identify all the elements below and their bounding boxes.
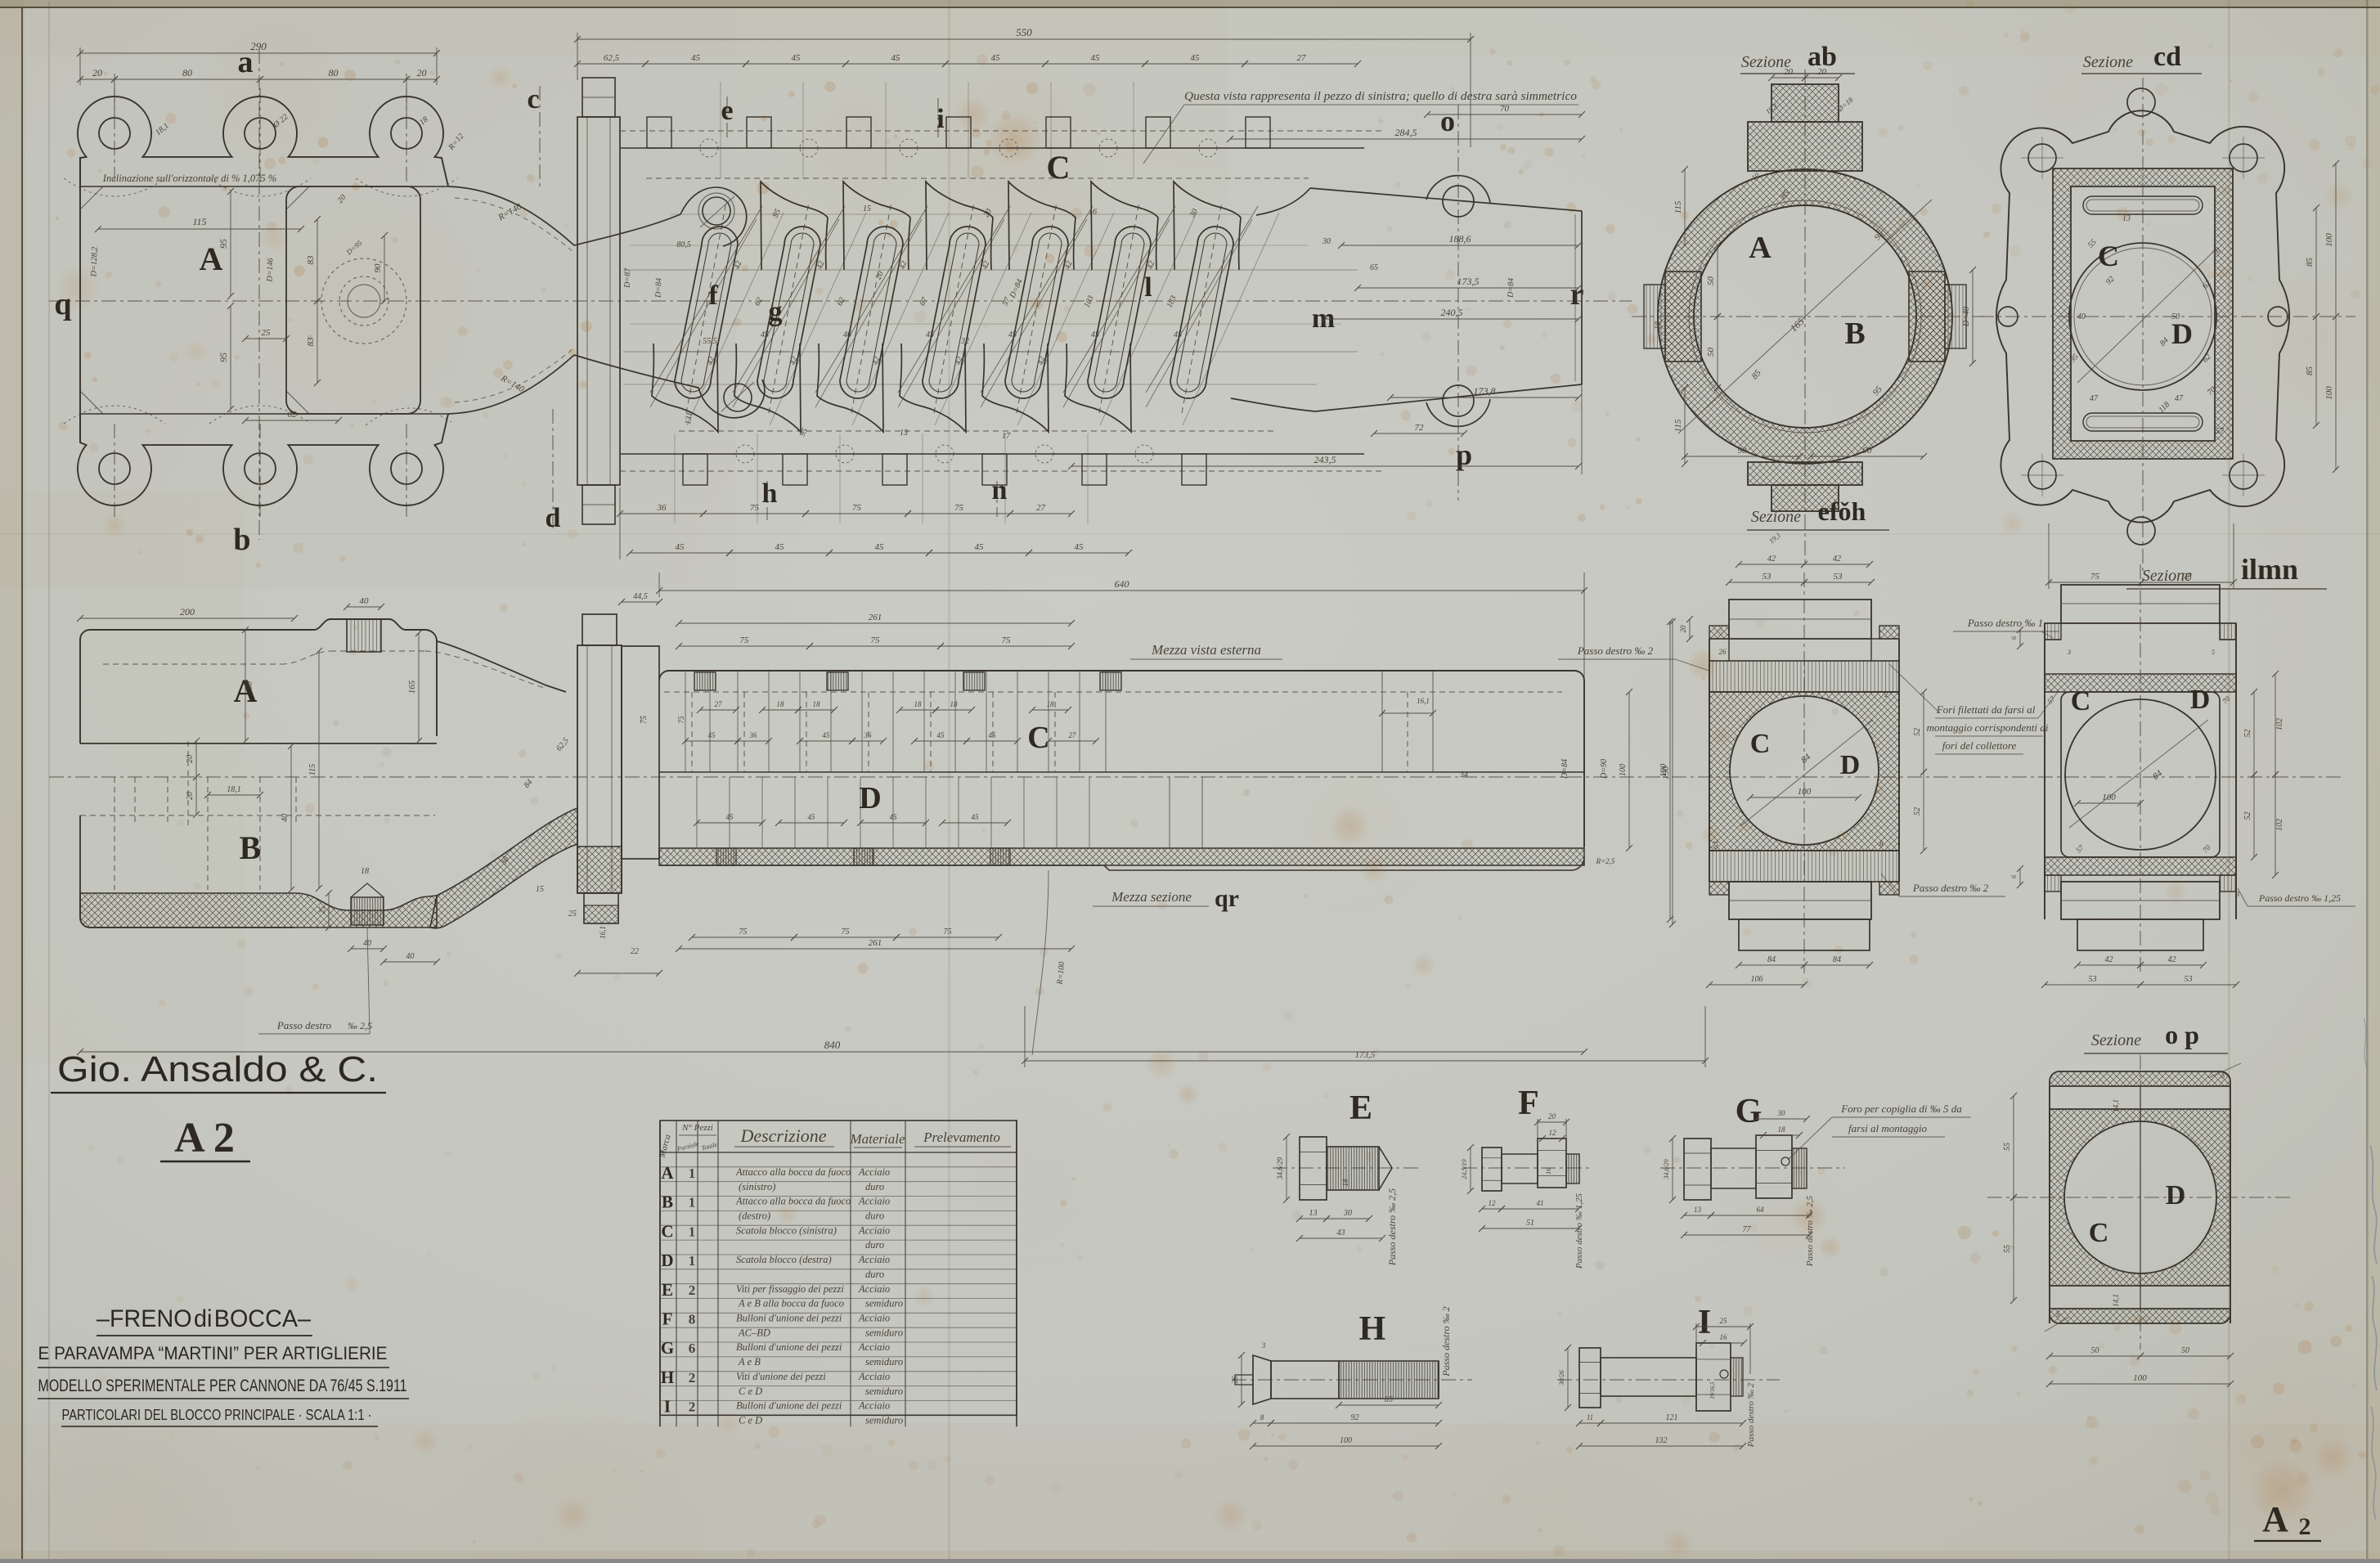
svg-text:Prelevamento: Prelevamento — [923, 1130, 1000, 1145]
svg-text:H: H — [661, 1368, 674, 1387]
svg-text:E: E — [1349, 1089, 1372, 1127]
svg-text:18,1: 18,1 — [227, 785, 241, 794]
svg-text:F: F — [1518, 1085, 1539, 1122]
svg-text:45: 45 — [891, 53, 901, 63]
svg-text:50: 50 — [1706, 276, 1716, 286]
svg-text:18: 18 — [1341, 1179, 1349, 1187]
svg-text:85: 85 — [1385, 1395, 1393, 1404]
svg-text:30: 30 — [1777, 1109, 1786, 1117]
svg-text:efǒh: efǒh — [1818, 496, 1866, 526]
svg-text:3: 3 — [2067, 649, 2071, 656]
svg-text:12: 12 — [1489, 1199, 1497, 1207]
svg-text:g: g — [769, 297, 783, 327]
svg-text:115: 115 — [308, 764, 317, 775]
svg-text:duro: duro — [865, 1210, 884, 1222]
svg-text:Gio. Ansaldo & C.: Gio. Ansaldo & C. — [57, 1049, 378, 1089]
svg-text:43: 43 — [1337, 1228, 1345, 1237]
svg-text:Acciaio: Acciaio — [858, 1400, 890, 1412]
svg-text:53: 53 — [2089, 975, 2097, 984]
svg-text:75: 75 — [954, 503, 964, 513]
svg-text:261: 261 — [869, 613, 882, 622]
svg-text:85: 85 — [2305, 258, 2315, 267]
svg-text:Passo destro: Passo destro — [276, 1019, 332, 1031]
svg-text:I: I — [664, 1397, 671, 1417]
svg-text:Attacco alla bocca da fuoco: Attacco alla bocca da fuoco — [735, 1196, 851, 1207]
svg-text:Mezza sezione: Mezza sezione — [1111, 889, 1192, 905]
svg-text:75: 75 — [852, 503, 862, 513]
svg-text:montaggio corrispondenti ai: montaggio corrispondenti ai — [1927, 721, 2049, 734]
svg-text:F: F — [662, 1309, 673, 1329]
svg-text:C: C — [2098, 240, 2119, 272]
svg-text:70: 70 — [1500, 104, 1510, 114]
svg-text:84: 84 — [1833, 955, 1841, 964]
svg-text:semiduro: semiduro — [865, 1298, 903, 1309]
svg-text:Viti per fissaggio dei pezzi: Viti per fissaggio dei pezzi — [736, 1283, 844, 1295]
svg-text:36: 36 — [749, 731, 758, 739]
svg-text:284,5: 284,5 — [1395, 127, 1417, 138]
svg-text:cd: cd — [2153, 42, 2181, 72]
svg-text:11: 11 — [1587, 1413, 1593, 1422]
svg-text:165: 165 — [407, 680, 417, 694]
svg-text:16,1: 16,1 — [1712, 841, 1719, 852]
svg-text:Bulloni d'unione dei pezzi: Bulloni d'unione dei pezzi — [736, 1341, 842, 1353]
svg-text:Passo destro ‰ 2,5: Passo destro ‰ 2,5 — [1386, 1188, 1398, 1266]
svg-text:16,1: 16,1 — [599, 926, 607, 939]
svg-text:640: 640 — [1115, 578, 1129, 590]
svg-text:51: 51 — [1526, 1219, 1534, 1228]
svg-text:Inclinazione sull'orizzontale: Inclinazione sull'orizzontale di % 1,075… — [102, 173, 276, 184]
svg-text:16: 16 — [1720, 1333, 1728, 1341]
svg-text:25: 25 — [1720, 1317, 1728, 1325]
svg-text:95: 95 — [218, 239, 229, 249]
svg-text:55,5: 55,5 — [703, 337, 717, 346]
svg-text:D: D — [2190, 685, 2211, 715]
svg-text:Passo destro ‰ 2: Passo destro ‰ 2 — [1746, 1382, 1756, 1448]
svg-text:52: 52 — [2243, 812, 2252, 820]
svg-text:25: 25 — [318, 906, 326, 914]
svg-text:20: 20 — [92, 67, 102, 79]
svg-text:A e B alla bocca da fuoco: A e B alla bocca da fuoco — [738, 1298, 844, 1309]
svg-text:45: 45 — [937, 731, 945, 739]
svg-text:Sezione: Sezione — [1751, 508, 1801, 526]
svg-text:290: 290 — [250, 40, 267, 52]
svg-text:75: 75 — [640, 716, 649, 724]
svg-text:77: 77 — [1743, 1225, 1752, 1234]
svg-text:50: 50 — [2181, 1346, 2189, 1355]
svg-text:85: 85 — [2305, 366, 2315, 376]
svg-text:20: 20 — [1679, 625, 1687, 633]
svg-text:I: I — [1698, 1304, 1711, 1341]
svg-text:25: 25 — [262, 328, 272, 338]
svg-text:C e D: C e D — [739, 1415, 762, 1426]
svg-text:3: 3 — [1261, 1341, 1266, 1350]
svg-text:(sinistro): (sinistro) — [739, 1181, 775, 1192]
svg-text:N° Pezzi: N° Pezzi — [681, 1123, 713, 1133]
svg-text:80: 80 — [182, 67, 192, 79]
svg-text:36: 36 — [657, 503, 667, 513]
svg-text:18: 18 — [914, 700, 923, 708]
svg-text:AC–BD: AC–BD — [738, 1327, 770, 1338]
svg-text:Acciaio: Acciaio — [858, 1196, 890, 1207]
svg-text:121: 121 — [1666, 1413, 1678, 1422]
svg-text:G: G — [661, 1338, 674, 1358]
svg-text:45: 45 — [691, 53, 701, 63]
svg-text:2: 2 — [2299, 1513, 2311, 1540]
svg-text:45: 45 — [775, 542, 785, 552]
svg-text:C e D: C e D — [739, 1386, 762, 1397]
svg-text:ilmn: ilmn — [2241, 553, 2298, 586]
svg-text:Bulloni d'unione dei pezzi: Bulloni d'unione dei pezzi — [736, 1313, 842, 1324]
svg-text:Scatola blocco (destra): Scatola blocco (destra) — [736, 1254, 832, 1265]
svg-text:13: 13 — [2122, 214, 2131, 223]
svg-text:(destro): (destro) — [739, 1210, 770, 1222]
svg-text:34,6/29: 34,6/29 — [1276, 1157, 1284, 1180]
svg-text:102: 102 — [2275, 718, 2284, 730]
svg-text:18: 18 — [1778, 1125, 1786, 1134]
svg-text:Acciaio: Acciaio — [858, 1166, 890, 1178]
svg-text:18: 18 — [361, 867, 369, 876]
svg-text:100: 100 — [2324, 233, 2334, 247]
svg-text:243,5: 243,5 — [1314, 454, 1336, 465]
svg-text:100: 100 — [1619, 764, 1628, 776]
svg-text:100: 100 — [1340, 1436, 1352, 1445]
svg-text:Acciaio: Acciaio — [858, 1224, 890, 1236]
svg-text:G: G — [1736, 1093, 1763, 1130]
svg-text:132: 132 — [1655, 1436, 1668, 1445]
svg-text:Foro per copiglia di ‰ 5 da: Foro per copiglia di ‰ 5 da — [1840, 1103, 1962, 1115]
svg-text:45: 45 — [792, 53, 802, 63]
svg-text:12: 12 — [1549, 1129, 1557, 1137]
svg-text:semiduro: semiduro — [865, 1356, 903, 1368]
svg-text:B: B — [240, 829, 262, 866]
svg-text:34: 34 — [1459, 770, 1468, 779]
svg-text:13: 13 — [1694, 1206, 1702, 1214]
svg-text:200: 200 — [180, 606, 195, 618]
svg-text:5: 5 — [2056, 1310, 2060, 1318]
svg-text:188,6: 188,6 — [1449, 233, 1471, 245]
svg-text:40: 40 — [281, 814, 290, 822]
svg-text:Fori filettati da farsi al: Fori filettati da farsi al — [1936, 703, 2036, 716]
svg-text:18: 18 — [950, 700, 959, 708]
svg-text:55: 55 — [2003, 1245, 2012, 1253]
svg-text:45: 45 — [991, 53, 1001, 63]
svg-text:45: 45 — [926, 330, 934, 339]
svg-text:8: 8 — [1260, 1413, 1264, 1422]
svg-text:20: 20 — [417, 67, 427, 79]
svg-text:53: 53 — [2185, 975, 2193, 984]
svg-text:45: 45 — [975, 542, 985, 552]
svg-text:15: 15 — [863, 204, 871, 213]
svg-text:D: D — [2166, 1180, 2186, 1210]
svg-text:Passo destro ‰ 1: Passo destro ‰ 1 — [1967, 617, 2043, 629]
svg-text:C: C — [1750, 729, 1771, 759]
svg-text:Passo destro ‰ 2,5: Passo destro ‰ 2,5 — [1805, 1195, 1815, 1267]
svg-text:45: 45 — [1191, 53, 1201, 63]
svg-text:42: 42 — [2168, 955, 2176, 964]
svg-text:36: 36 — [864, 731, 873, 739]
svg-text:40: 40 — [2077, 312, 2086, 321]
svg-text:44,5: 44,5 — [633, 592, 648, 601]
svg-text:20: 20 — [1548, 1112, 1556, 1121]
svg-text:90: 90 — [245, 681, 254, 689]
svg-text:Passo destro ‰ 2: Passo destro ‰ 2 — [1912, 882, 1989, 894]
svg-text:D: D — [2171, 317, 2193, 350]
svg-text:D=84: D=84 — [1507, 278, 1516, 299]
svg-text:45: 45 — [1174, 330, 1182, 339]
svg-text:D=87: D=87 — [623, 267, 633, 289]
svg-text:95: 95 — [218, 353, 229, 362]
svg-text:45: 45 — [1008, 330, 1017, 339]
svg-text:E PARAVAMPA “MARTINI” PER ARTI: E PARAVAMPA “MARTINI” PER ARTIGLIERIE — [38, 1343, 388, 1363]
svg-text:2: 2 — [689, 1399, 696, 1415]
svg-text:26: 26 — [1719, 648, 1727, 656]
svg-text:n: n — [992, 475, 1008, 505]
svg-text:Questa vista rappresenta il: Questa vista rappresenta il pezzo di sin… — [1184, 90, 1578, 103]
svg-text:8: 8 — [1879, 840, 1884, 848]
svg-text:A: A — [2262, 1499, 2288, 1539]
svg-text:25: 25 — [568, 910, 577, 918]
svg-text:45: 45 — [989, 731, 997, 739]
svg-text:17: 17 — [1002, 432, 1011, 441]
svg-text:5: 5 — [2221, 1071, 2225, 1080]
svg-text:115: 115 — [1673, 200, 1683, 213]
svg-text:duro: duro — [865, 1181, 884, 1192]
svg-text:A: A — [661, 1163, 674, 1183]
svg-text:d: d — [546, 503, 561, 533]
svg-text:18: 18 — [813, 700, 821, 708]
svg-text:B: B — [1844, 317, 1865, 351]
svg-text:92: 92 — [1351, 1413, 1359, 1422]
svg-text:65: 65 — [1370, 263, 1378, 272]
svg-text:46: 46 — [843, 330, 851, 339]
svg-text:30: 30 — [1343, 1209, 1352, 1218]
svg-text:45: 45 — [890, 813, 898, 821]
svg-text:c: c — [527, 84, 539, 115]
svg-text:75: 75 — [871, 636, 881, 645]
svg-text:f: f — [708, 281, 718, 311]
svg-text:50: 50 — [2171, 312, 2180, 321]
svg-text:C: C — [1027, 721, 1049, 755]
svg-text:3: 3 — [2235, 891, 2239, 898]
svg-text:240,5: 240,5 — [1441, 307, 1463, 318]
svg-text:106: 106 — [1751, 975, 1763, 984]
svg-text:27: 27 — [1036, 503, 1046, 513]
svg-text:R=2,5: R=2,5 — [1596, 857, 1615, 865]
svg-text:72: 72 — [1415, 423, 1425, 433]
svg-text:52: 52 — [1913, 728, 1922, 736]
svg-text:16,1: 16,1 — [1417, 697, 1430, 705]
svg-text:Descrizione: Descrizione — [739, 1125, 826, 1146]
svg-text:45: 45 — [1075, 542, 1084, 552]
svg-text:30/26: 30/26 — [1558, 1370, 1565, 1386]
svg-text:Materiale: Materiale — [849, 1131, 905, 1147]
svg-text:53: 53 — [1763, 572, 1772, 582]
svg-text:14,1: 14,1 — [2112, 1294, 2120, 1307]
svg-text:42: 42 — [1833, 555, 1841, 564]
svg-text:24,5/19: 24,5/19 — [1461, 1159, 1468, 1179]
svg-text:2: 2 — [689, 1282, 696, 1298]
svg-text:D: D — [859, 781, 881, 815]
svg-text:32: 32 — [960, 337, 969, 346]
svg-text:6: 6 — [2010, 875, 2018, 878]
svg-text:100: 100 — [2102, 793, 2116, 802]
svg-text:Attacco alla bocca da fuoco: Attacco alla bocca da fuoco — [735, 1166, 851, 1178]
svg-text:75: 75 — [944, 927, 952, 936]
svg-text:55: 55 — [2003, 1143, 2012, 1151]
svg-text:550: 550 — [1016, 26, 1032, 38]
svg-text:duro: duro — [865, 1269, 884, 1280]
svg-text:102: 102 — [2275, 819, 2284, 831]
svg-text:1: 1 — [689, 1253, 696, 1269]
svg-text:1: 1 — [689, 1224, 696, 1239]
svg-text:Acciaio: Acciaio — [858, 1254, 890, 1265]
svg-text:45: 45 — [1091, 53, 1101, 63]
svg-text:45: 45 — [1091, 330, 1099, 339]
svg-text:22: 22 — [631, 947, 639, 956]
svg-text:D: D — [661, 1251, 673, 1270]
svg-text:5: 5 — [2212, 649, 2215, 656]
svg-text:Viti d'unione dei pezzi: Viti d'unione dei pezzi — [736, 1371, 826, 1382]
svg-text:8: 8 — [689, 1312, 696, 1327]
svg-text:Passo destro ‰ 1,25: Passo destro ‰ 1,25 — [2258, 892, 2341, 904]
svg-text:Bulloni d'unione dei pezzi: Bulloni d'unione dei pezzi — [736, 1400, 842, 1412]
svg-text:190: 190 — [1659, 763, 1668, 777]
svg-text:E: E — [662, 1280, 673, 1300]
svg-text:D: D — [1840, 750, 1861, 780]
svg-text:840: 840 — [824, 1039, 841, 1051]
svg-text:42: 42 — [2105, 955, 2113, 964]
svg-text:27: 27 — [1297, 53, 1307, 63]
svg-text:20: 20 — [186, 755, 195, 763]
svg-text:100: 100 — [2133, 1373, 2147, 1383]
svg-text:Scatola blocco (sinistra): Scatola blocco (sinistra) — [736, 1224, 837, 1236]
svg-text:64: 64 — [1757, 1206, 1765, 1214]
svg-text:173,8: 173,8 — [1474, 385, 1496, 397]
svg-text:84: 84 — [1767, 955, 1776, 964]
svg-text:A: A — [1749, 231, 1772, 265]
svg-text:26: 26 — [1231, 1376, 1239, 1384]
svg-text:15: 15 — [536, 885, 544, 894]
svg-text:83: 83 — [306, 255, 316, 265]
svg-text:o: o — [1440, 105, 1455, 137]
svg-text:D=40: D=40 — [1962, 307, 1971, 327]
svg-text:83: 83 — [306, 337, 316, 347]
svg-text:90: 90 — [1738, 446, 1748, 456]
svg-text:20: 20 — [1784, 67, 1794, 77]
svg-text:80: 80 — [329, 67, 339, 79]
svg-text:C: C — [1047, 149, 1071, 186]
svg-text:farsi al montaggio: farsi al montaggio — [1848, 1122, 1928, 1134]
svg-text:47: 47 — [2175, 394, 2184, 403]
svg-text:75: 75 — [1002, 636, 1012, 645]
svg-text:Passo destro ‰ 2: Passo destro ‰ 2 — [1440, 1306, 1452, 1377]
svg-text:D=84: D=84 — [1560, 759, 1569, 779]
svg-text:75: 75 — [739, 927, 748, 936]
svg-text:18: 18 — [1654, 321, 1663, 330]
svg-text:C: C — [2089, 1218, 2109, 1248]
svg-text:100: 100 — [1798, 787, 1812, 797]
svg-text:A 2: A 2 — [174, 1115, 235, 1161]
svg-text:13: 13 — [1309, 1209, 1318, 1218]
svg-text:115: 115 — [192, 216, 206, 227]
svg-text:2: 2 — [1884, 691, 1888, 698]
svg-text:41: 41 — [1537, 1199, 1544, 1207]
svg-text:fori del collettore: fori del collettore — [1942, 739, 2017, 752]
svg-text:1: 1 — [689, 1195, 696, 1210]
svg-text:52: 52 — [1913, 807, 1922, 815]
svg-text:q: q — [54, 287, 71, 321]
svg-text:14,1: 14,1 — [2112, 1099, 2120, 1112]
svg-text:75: 75 — [740, 636, 750, 645]
svg-text:45: 45 — [875, 542, 885, 552]
svg-text:40: 40 — [406, 952, 415, 961]
svg-text:A e B: A e B — [738, 1356, 761, 1368]
svg-text:173,5: 173,5 — [1457, 276, 1480, 287]
svg-text:6: 6 — [2010, 636, 2018, 640]
svg-text:50: 50 — [1706, 348, 1716, 357]
svg-text:2: 2 — [689, 1370, 696, 1386]
svg-text:18: 18 — [1047, 700, 1055, 708]
svg-text:Acciaio: Acciaio — [858, 1371, 890, 1382]
svg-text:20: 20 — [1817, 67, 1827, 77]
svg-text:30: 30 — [1322, 237, 1331, 246]
svg-text:52: 52 — [2243, 730, 2252, 738]
svg-text:27: 27 — [715, 700, 723, 708]
svg-text:Acciaio: Acciaio — [858, 1313, 890, 1324]
svg-text:90: 90 — [1863, 446, 1873, 456]
svg-text:b: b — [233, 523, 250, 557]
svg-text:C: C — [2071, 686, 2091, 716]
svg-text:1: 1 — [689, 1166, 696, 1181]
svg-text:semiduro: semiduro — [865, 1415, 903, 1426]
svg-text:semiduro: semiduro — [865, 1327, 903, 1338]
svg-text:45: 45 — [823, 731, 831, 739]
svg-text:e: e — [721, 96, 733, 126]
svg-text:D=128,2: D=128,2 — [89, 246, 99, 277]
svg-text:62: 62 — [288, 410, 298, 420]
svg-text:Acciaio: Acciaio — [858, 1341, 890, 1353]
svg-text:173,5: 173,5 — [1355, 1050, 1376, 1060]
svg-text:20: 20 — [186, 792, 195, 800]
svg-text:47: 47 — [2090, 394, 2099, 403]
svg-text:62,5: 62,5 — [604, 53, 620, 63]
svg-text:6: 6 — [689, 1341, 696, 1356]
svg-text:D=90: D=90 — [1600, 759, 1609, 779]
svg-text:l: l — [1144, 272, 1152, 303]
svg-text:34,6/29: 34,6/29 — [1663, 1159, 1670, 1179]
svg-text:i: i — [936, 104, 944, 134]
svg-text:75: 75 — [842, 927, 850, 936]
svg-text:53: 53 — [1834, 572, 1843, 582]
svg-text:Sezione: Sezione — [2142, 567, 2192, 585]
svg-text:75: 75 — [677, 716, 685, 724]
svg-text:19/16,5: 19/16,5 — [1709, 1381, 1716, 1399]
svg-text:PARTICOLARI DEL BLOCCO PRIN: PARTICOLARI DEL BLOCCO PRINCIPALE · SCAL… — [62, 1407, 372, 1423]
svg-text:qr: qr — [1215, 885, 1239, 912]
svg-text:Sezione: Sezione — [2091, 1031, 2141, 1049]
svg-text:Passo destro ‰ 1,25: Passo destro ‰ 1,25 — [1574, 1193, 1584, 1269]
svg-text:75: 75 — [2090, 572, 2100, 582]
svg-text:80,5: 80,5 — [676, 240, 691, 249]
svg-text:Mezza vista esterna: Mezza vista esterna — [1151, 642, 1261, 658]
svg-text:B: B — [662, 1192, 673, 1212]
svg-text:16: 16 — [1089, 208, 1097, 217]
svg-text:45: 45 — [726, 813, 734, 821]
svg-text:MODELLO SPERIMENTALE PER CANNO: MODELLO SPERIMENTALE PER CANNONE DA 76/4… — [38, 1377, 407, 1395]
svg-text:Sezione: Sezione — [2083, 53, 2133, 71]
svg-text:‰ 2,5: ‰ 2,5 — [348, 1020, 372, 1031]
svg-text:–FRENO di BOCCA–: –FRENO di BOCCA– — [97, 1305, 311, 1332]
